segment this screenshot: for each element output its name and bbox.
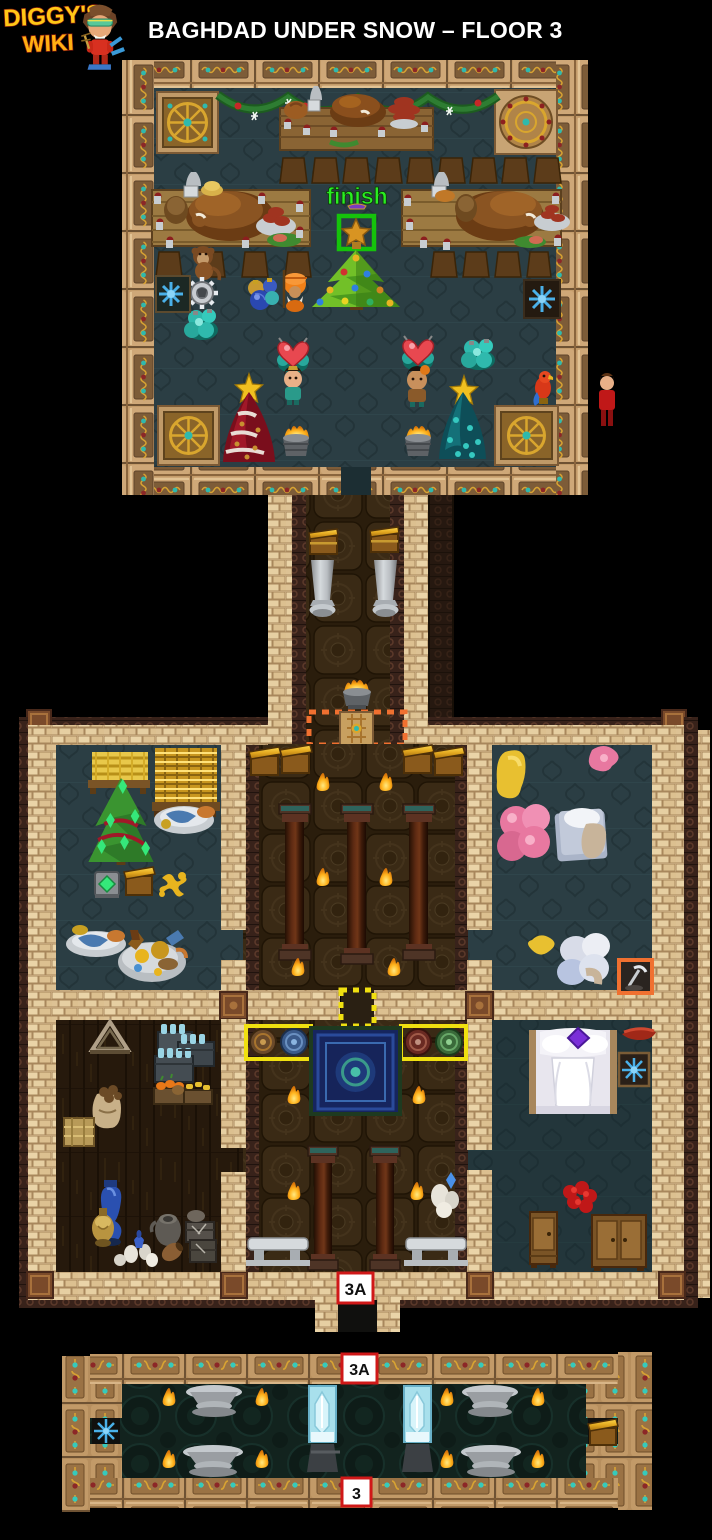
- svg-text:BAGHDAD UNDER SNOW – FLOOR 3: BAGHDAD UNDER SNOW – FLOOR 3: [148, 17, 563, 43]
- svg-text:3A: 3A: [349, 1362, 370, 1379]
- svg-text:3: 3: [352, 1486, 361, 1503]
- svg-text:WIKI: WIKI: [22, 29, 74, 58]
- svg-text:3A: 3A: [345, 1280, 367, 1299]
